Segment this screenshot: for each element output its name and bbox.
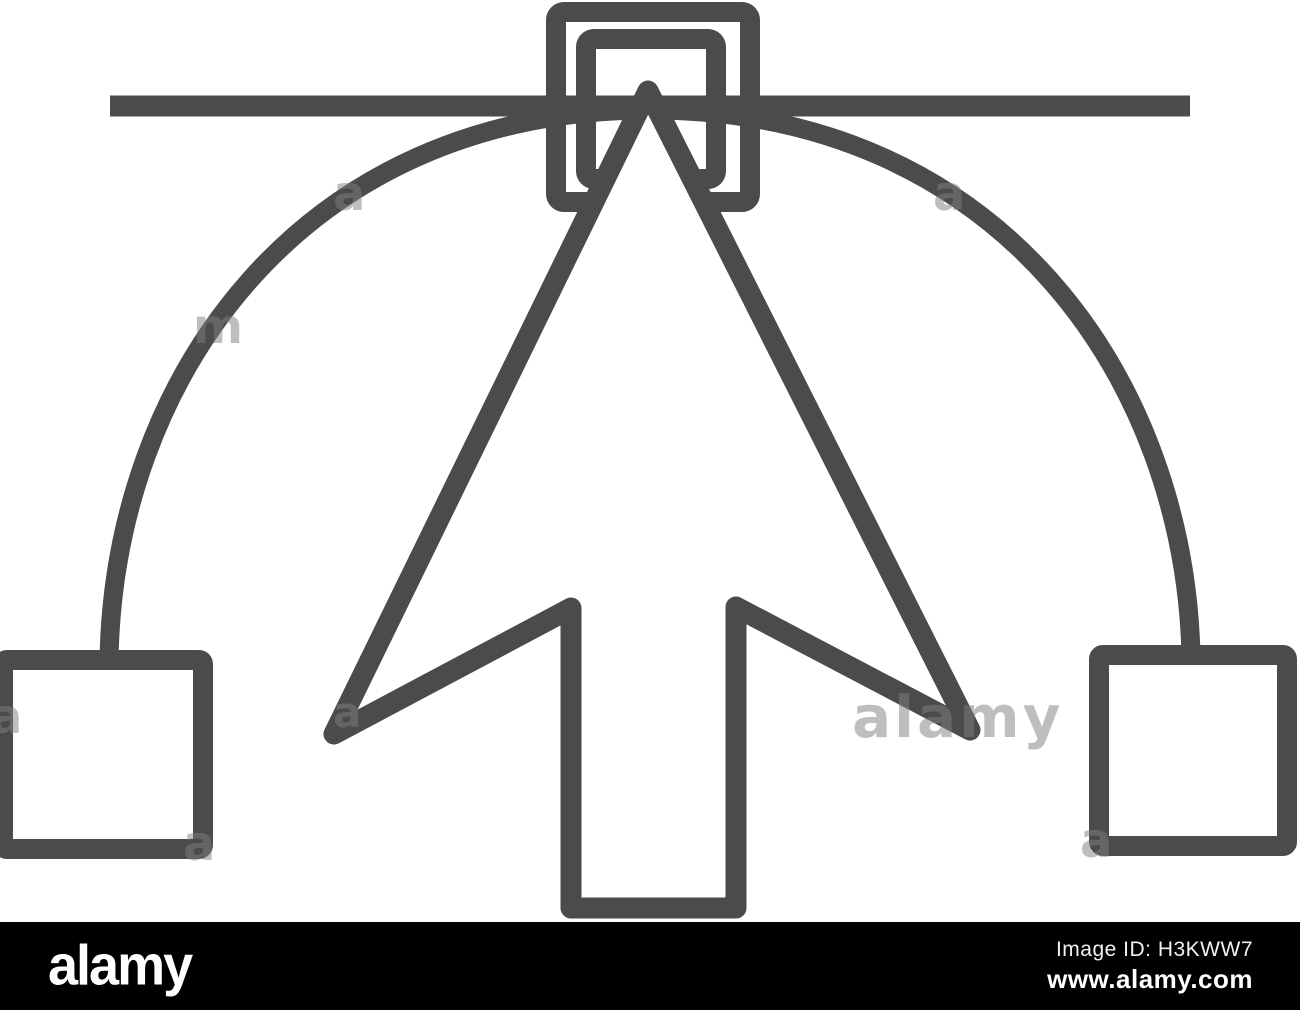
- watermark-letter: a: [183, 816, 215, 872]
- cursor-arrow: [334, 91, 970, 908]
- alamy-logo: alamy: [48, 920, 191, 1010]
- watermark-letter: a: [333, 688, 361, 737]
- footer-info-block: Image ID: H3KWW7 www.alamy.com: [1047, 938, 1253, 995]
- image-id-text: Image ID: H3KWW7: [1056, 938, 1253, 962]
- left-control-handle-node: [3, 660, 203, 849]
- watermark-letter: a: [333, 166, 365, 222]
- watermark-letter: m: [193, 299, 243, 355]
- watermark-alamy-center: alamy: [852, 683, 1063, 751]
- alamy-watermark-bar: alamy Image ID: H3KWW7 www.alamy.com: [0, 922, 1300, 1010]
- watermark-letter: a: [933, 166, 965, 222]
- right-control-handle-node: [1099, 655, 1287, 846]
- alamy-url-text: www.alamy.com: [1047, 964, 1253, 995]
- stock-image-canvas: a a a m a a a alamy alamy Image ID: H3KW…: [0, 0, 1300, 1010]
- pointer-bezier-icon: a a a m a a a alamy: [0, 0, 1300, 922]
- watermark-letter: a: [0, 689, 22, 745]
- watermark-letter: a: [1080, 813, 1112, 869]
